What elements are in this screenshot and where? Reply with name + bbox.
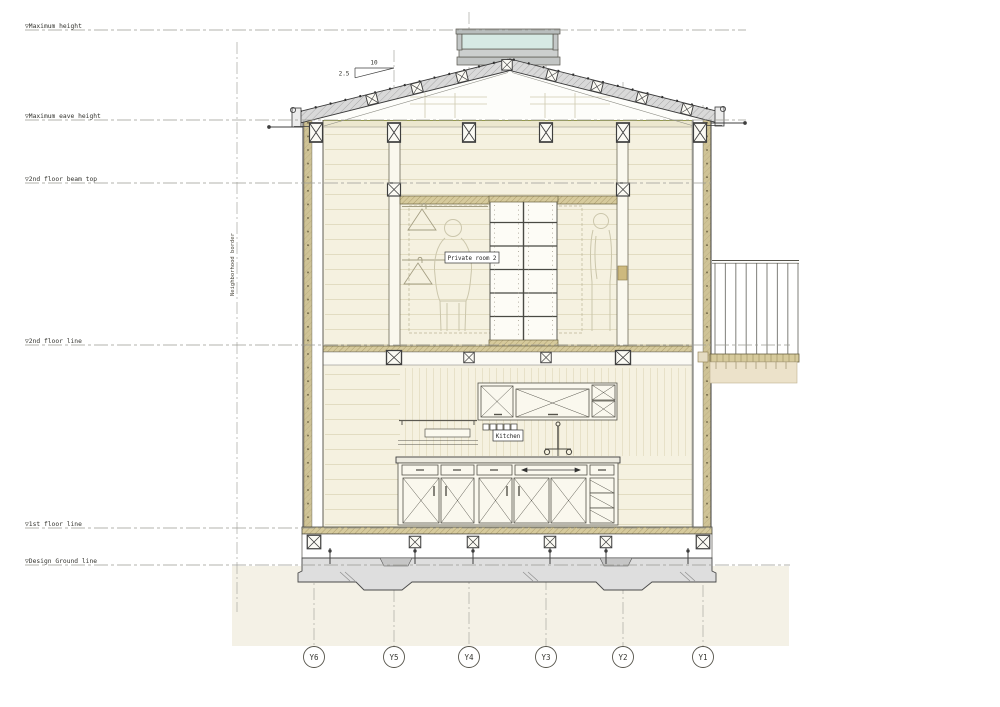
left-wall [303,116,323,545]
boundary-line: Neighborhood border [230,42,237,612]
foundation [298,527,716,590]
grid-bubble-y6: Y6 [304,647,325,668]
section-drawing: Neighborhood border [0,0,1000,707]
second-floor-band [307,346,711,365]
slope-rise-label: 2.5 [339,71,350,78]
balcony-railing [715,263,798,354]
grid-bubble-y2: Y2 [613,647,634,668]
svg-text:Kitchen: Kitchen [496,434,520,440]
section-drawing-sheet: Neighborhood border [0,0,1000,707]
balcony-deck [710,354,799,362]
svg-text:Y2: Y2 [618,653,627,662]
kitchen-base-cabinets [398,463,618,525]
grid-bubble-y1: Y1 [693,647,714,668]
grid-bubble-y5: Y5 [384,647,405,668]
kitchen-counter [396,457,620,463]
svg-text:Y4: Y4 [464,653,474,662]
datum-label-design-ground-line: ▽Design Ground line [25,558,97,565]
column-blocking [618,266,627,280]
roof-slope-indicator: 10 2.5 [339,60,394,78]
svg-text:Y1: Y1 [698,653,707,662]
right-wall [692,116,711,545]
grid-bubble-y3: Y3 [536,647,557,668]
svg-text:Y6: Y6 [309,653,319,662]
shelf-unit [489,196,558,347]
datum-label-2nd-floor-beam-top: ▽2nd floor beam top [25,176,97,183]
svg-text:Private room 2: Private room 2 [448,256,497,262]
kitchen-tiles [483,424,517,430]
datum-label-2nd-floor-line: ▽2nd floor line [25,338,82,345]
datum-label-maximum-eave-height: ▽Maximum eave height [25,113,101,120]
grid-bubbles: Y6 Y5 Y4 Y3 Y2 Y1 [304,647,714,668]
skylight-glass [462,34,553,49]
svg-text:Y3: Y3 [541,653,550,662]
balcony [698,261,799,384]
grid-bubble-y4: Y4 [459,647,480,668]
svg-text:Y5: Y5 [389,653,398,662]
kitchen-label: Kitchen [493,430,523,441]
slope-run-label: 10 [370,60,378,67]
datum-label-1st-floor-line: ▽1st floor line [25,521,82,528]
private-room-label: Private room 2 [445,252,499,263]
datum-label-maximum-height: ▽Maximum height [25,23,82,30]
kitchen-upper-cabinets [478,383,617,420]
boundary-label: Neighborhood border [230,232,236,296]
